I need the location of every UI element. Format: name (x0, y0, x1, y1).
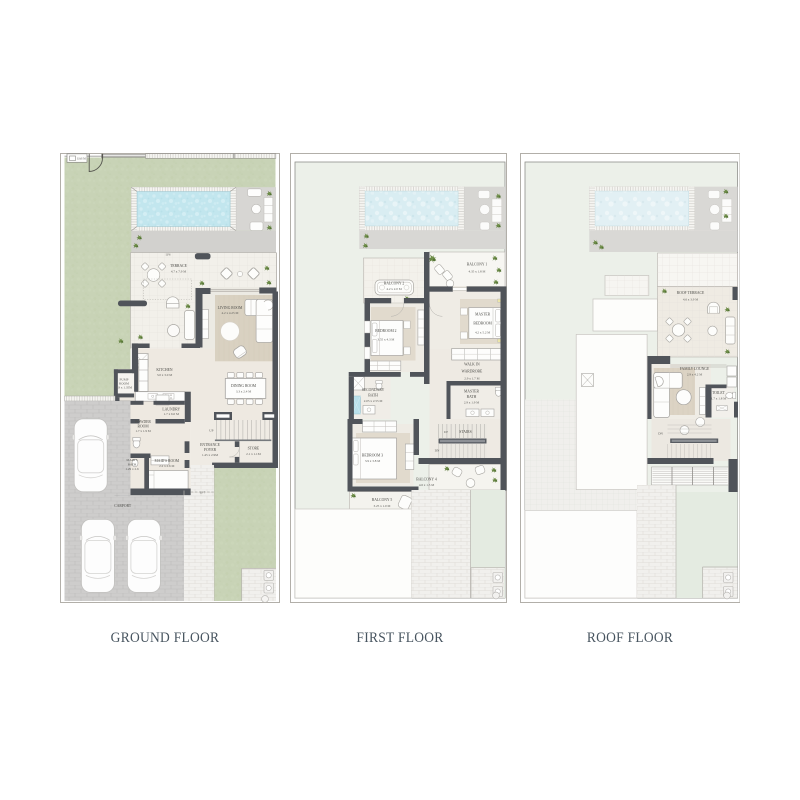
svg-text:0.9 x 1.35M: 0.9 x 1.35M (115, 386, 131, 390)
svg-text:ROOM: ROOM (137, 425, 149, 429)
svg-text:BALCONY 5: BALCONY 5 (371, 498, 392, 502)
svg-text:3.0 x 3.0 M: 3.0 x 3.0 M (156, 373, 171, 377)
svg-text:BALCONY 4: BALCONY 4 (416, 478, 437, 482)
svg-text:1.45 x 2.9M: 1.45 x 2.9M (201, 453, 217, 457)
svg-text:1.7 x 1.8 M: 1.7 x 1.8 M (710, 397, 725, 401)
svg-text:STAIRS: STAIRS (459, 430, 471, 434)
svg-text:TERRACE: TERRACE (170, 264, 188, 268)
svg-text:LAUNDRY: LAUNDRY (162, 408, 180, 412)
svg-text:4.2 x 2.0 M: 4.2 x 2.0 M (386, 287, 401, 291)
svg-text:CARPORT: CARPORT (114, 504, 132, 508)
svg-text:BALCONY 1: BALCONY 1 (466, 263, 487, 267)
svg-text:FOYER: FOYER (203, 448, 216, 452)
svg-text:STORE: STORE (247, 447, 259, 451)
svg-text:3.3 x 2.4 M: 3.3 x 2.4 M (235, 390, 250, 394)
svg-text:3.25 x 1.0 M: 3.25 x 1.0 M (373, 504, 390, 508)
svg-text:ENTRANCE: ENTRANCE (200, 443, 220, 447)
svg-text:4.6 x 1.5 M: 4.6 x 1.5 M (418, 483, 433, 487)
svg-text:MASTER: MASTER (464, 390, 479, 394)
svg-text:1.29 x 2.6: 1.29 x 2.6 (125, 467, 139, 471)
svg-text:1.7 x 6.0 M: 1.7 x 6.0 M (163, 412, 178, 416)
svg-text:UP: UP (443, 430, 447, 434)
svg-text:GAS M: GAS M (77, 157, 86, 160)
svg-text:2.1 x 1.1M: 2.1 x 1.1M (246, 452, 261, 456)
svg-text:WARDROBE: WARDROBE (461, 370, 482, 374)
svg-text:4.35 x 1.8 M: 4.35 x 1.8 M (468, 270, 485, 274)
svg-text:MAID'S ROOM: MAID'S ROOM (154, 459, 179, 463)
svg-text:POWDER: POWDER (135, 420, 151, 424)
svg-text:BEDROOM: BEDROOM (473, 322, 492, 326)
svg-text:DINING ROOM: DINING ROOM (230, 384, 256, 388)
svg-text:LP 7: LP 7 (199, 491, 205, 495)
svg-text:ROOF TERRACE: ROOF TERRACE (676, 291, 704, 295)
svg-text:4.2 x 5.2 M: 4.2 x 5.2 M (474, 331, 489, 335)
svg-text:2.9 x 4.2 M: 2.9 x 4.2 M (686, 373, 701, 377)
svg-text:BEDROOM 3: BEDROOM 3 (361, 454, 382, 458)
svg-text:MAID'S: MAID'S (126, 458, 137, 462)
svg-text:3.9 x 3.8 M: 3.9 x 3.8 M (364, 459, 379, 463)
svg-text:TOILET: TOILET (712, 391, 726, 395)
svg-text:4.7 x 7.9 M: 4.7 x 7.9 M (170, 270, 185, 274)
svg-text:BATH: BATH (368, 394, 378, 398)
svg-text:1.7 x 1.9 M: 1.7 x 1.9 M (135, 429, 150, 433)
svg-text:BATH: BATH (466, 395, 476, 399)
svg-text:4.6 x 3.9 M: 4.6 x 3.9 M (682, 298, 697, 302)
svg-text:KITCHEN: KITCHEN (156, 368, 173, 372)
svg-text:2.05 x 2.55 M: 2.05 x 2.55 M (363, 399, 382, 403)
svg-text:LP6: LP6 (165, 252, 170, 256)
svg-text:WALK IN: WALK IN (464, 363, 480, 367)
svg-text:FAMILY LOUNGE: FAMILY LOUNGE (679, 367, 709, 371)
svg-text:BATH: BATH (127, 463, 136, 467)
svg-text:LIVING ROOM: LIVING ROOM (217, 306, 242, 310)
svg-text:UP: UP (209, 429, 213, 433)
svg-text:2.2 x 2.6 M: 2.2 x 2.6 M (159, 464, 174, 468)
svg-text:SECONDARY: SECONDARY (361, 388, 384, 392)
svg-text:2.9 x 1.7 M: 2.9 x 1.7 M (464, 376, 479, 380)
svg-text:BALCONY 2: BALCONY 2 (383, 282, 404, 286)
svg-text:BEDROOM 2: BEDROOM 2 (375, 329, 396, 333)
svg-text:4.2 x 4.25 M: 4.2 x 4.25 M (221, 311, 238, 315)
svg-text:MASTER: MASTER (475, 313, 490, 317)
svg-text:DN: DN (658, 432, 663, 436)
svg-text:3.55 x 4.3 M: 3.55 x 4.3 M (377, 338, 394, 342)
svg-text:DN: DN (434, 449, 439, 453)
svg-text:2.9 x 1.9 M: 2.9 x 1.9 M (463, 401, 478, 405)
